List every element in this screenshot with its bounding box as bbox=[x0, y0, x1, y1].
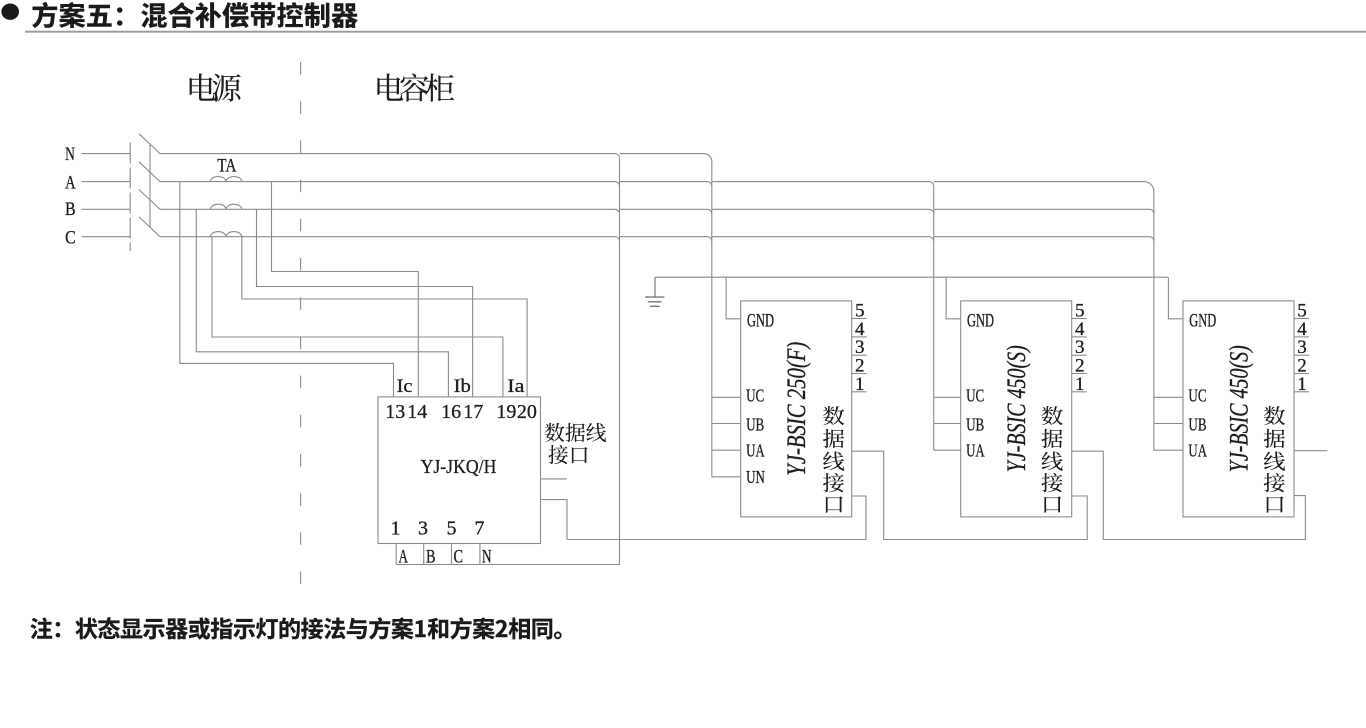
svg-text:GND: GND bbox=[747, 311, 774, 332]
svg-text:N: N bbox=[65, 144, 75, 165]
svg-text:1: 1 bbox=[855, 374, 865, 395]
svg-text:3: 3 bbox=[418, 517, 428, 539]
svg-text:1: 1 bbox=[1297, 374, 1307, 395]
svg-text:UB: UB bbox=[1188, 415, 1206, 435]
svg-text:UC: UC bbox=[746, 386, 764, 406]
svg-text:GND: GND bbox=[1189, 311, 1216, 332]
svg-text:YJ-BSIC 250(F): YJ-BSIC 250(F) bbox=[782, 342, 811, 476]
svg-text:13: 13 bbox=[385, 401, 405, 423]
svg-text:17: 17 bbox=[463, 401, 483, 423]
svg-text:GND: GND bbox=[967, 311, 994, 332]
svg-text:UC: UC bbox=[966, 386, 984, 406]
svg-text:Ia: Ia bbox=[507, 376, 525, 397]
svg-text:UA: UA bbox=[746, 441, 765, 461]
svg-text:UB: UB bbox=[746, 415, 764, 435]
svg-text:1: 1 bbox=[391, 517, 401, 539]
svg-text:Ib: Ib bbox=[454, 376, 471, 397]
svg-text:B: B bbox=[65, 199, 76, 220]
svg-text:UA: UA bbox=[1188, 441, 1207, 461]
svg-text:A: A bbox=[65, 172, 76, 193]
svg-text:1: 1 bbox=[1075, 374, 1085, 395]
svg-text:UC: UC bbox=[1188, 386, 1206, 406]
svg-text:C: C bbox=[65, 227, 76, 248]
svg-text:19: 19 bbox=[496, 401, 516, 423]
svg-text:YJ-BSIC 450(S): YJ-BSIC 450(S) bbox=[1224, 345, 1253, 472]
svg-text:UB: UB bbox=[966, 415, 984, 435]
svg-text:20: 20 bbox=[517, 401, 537, 423]
svg-text:5: 5 bbox=[447, 517, 457, 539]
svg-text:YJ-BSIC 450(S): YJ-BSIC 450(S) bbox=[1002, 345, 1031, 472]
svg-text:UA: UA bbox=[966, 441, 985, 461]
svg-text:14: 14 bbox=[407, 401, 427, 423]
svg-text:TA: TA bbox=[217, 156, 236, 177]
svg-text:UN: UN bbox=[746, 467, 765, 487]
svg-text:YJ-JKQ/H: YJ-JKQ/H bbox=[421, 457, 497, 478]
svg-text:16: 16 bbox=[441, 401, 461, 423]
svg-text:Ic: Ic bbox=[397, 376, 413, 397]
svg-text:7: 7 bbox=[475, 517, 485, 539]
